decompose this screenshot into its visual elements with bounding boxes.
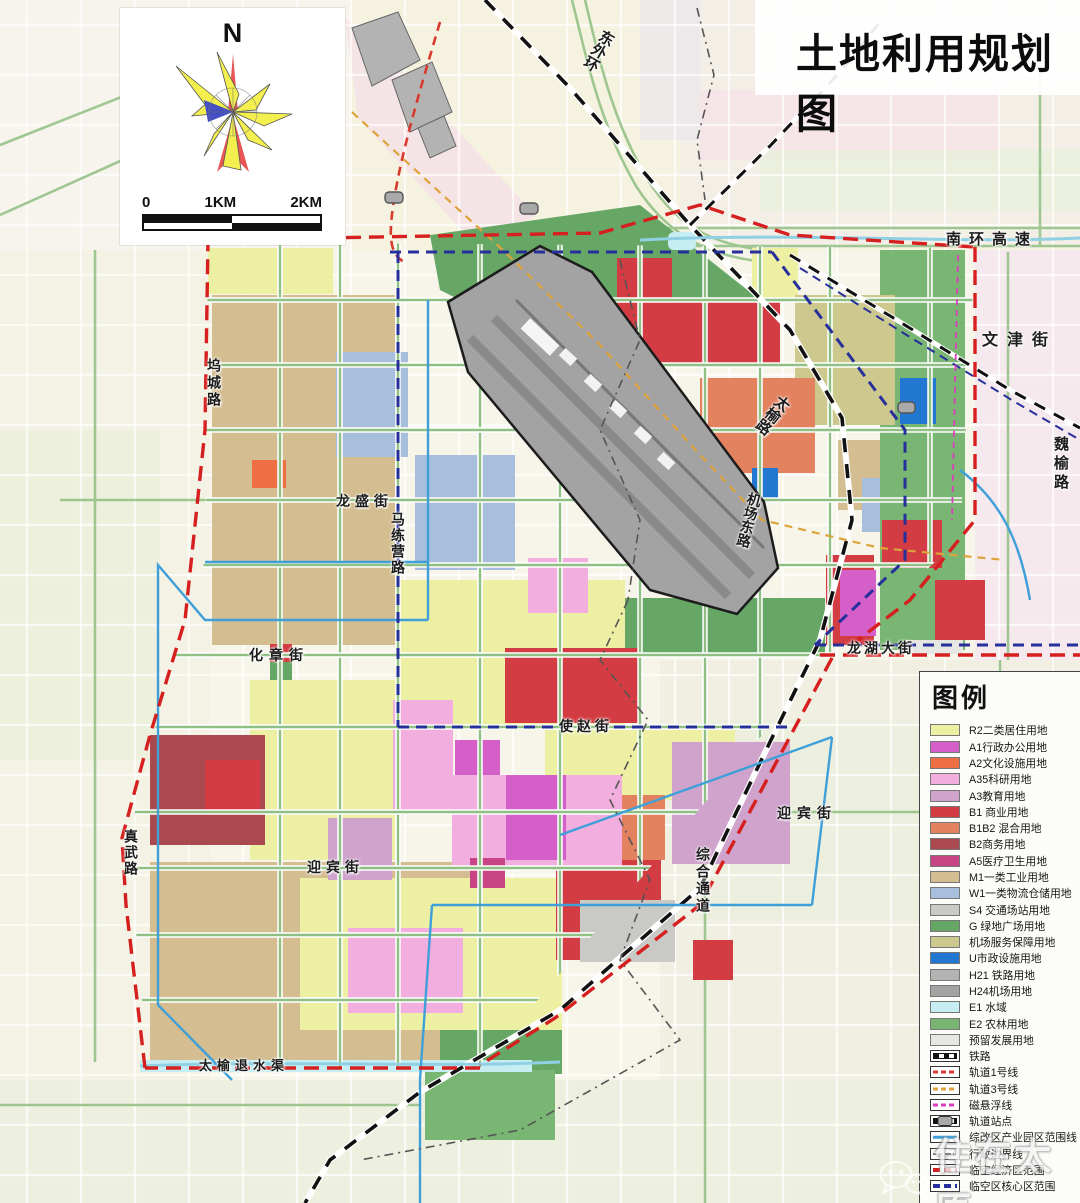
legend-item-label: R2二类居住用地 bbox=[969, 722, 1048, 738]
legend-swatch bbox=[930, 904, 960, 916]
legend-item-label: B2商务用地 bbox=[969, 836, 1025, 852]
legend-item-label: A5医疗卫生用地 bbox=[969, 853, 1047, 869]
legend-line-swatch bbox=[930, 1083, 960, 1095]
legend-item-label: A2文化设施用地 bbox=[969, 755, 1047, 771]
legend-swatch bbox=[930, 838, 960, 850]
legend-line-swatch bbox=[930, 1099, 960, 1111]
legend-swatch bbox=[930, 936, 960, 948]
legend-item-label: W1一类物流仓储用地 bbox=[969, 885, 1072, 901]
legend-item: R2二类居住用地 bbox=[930, 724, 1080, 737]
legend-swatch bbox=[930, 920, 960, 932]
legend-item: A2文化设施用地 bbox=[930, 757, 1080, 770]
legend-line-swatch bbox=[930, 1066, 960, 1078]
map-title: 土地利用规划图 bbox=[796, 20, 1080, 140]
legend-panel: 图例 R2二类居住用地A1行政办公用地A2文化设施用地A35科研用地A3教育用地… bbox=[919, 671, 1080, 1203]
land-use-planning-map: 东外环南环高速文津街魏榆路坞城路龙盛街马练营路太榆路机场东路化章街使赵街龙湖大街… bbox=[0, 0, 1080, 1203]
legend-swatch bbox=[930, 822, 960, 834]
legend-item-label: E2 农林用地 bbox=[969, 1016, 1028, 1032]
scale-labels: 0 1KM 2KM bbox=[142, 194, 322, 211]
legend-item-label: G 绿地广场用地 bbox=[969, 918, 1045, 934]
legend-item-label: B1B2 混合用地 bbox=[969, 820, 1042, 836]
legend-item: H21 铁路用地 bbox=[930, 968, 1080, 981]
legend-item: E1 水域 bbox=[930, 1001, 1080, 1014]
legend-line-swatch bbox=[930, 1180, 960, 1192]
legend-item: W1一类物流仓储用地 bbox=[930, 887, 1080, 900]
legend-item: 机场服务保障用地 bbox=[930, 936, 1080, 949]
legend-item-label: 临空经济区范围 bbox=[969, 1162, 1045, 1178]
legend-item-label: U市政设施用地 bbox=[969, 950, 1042, 966]
legend-item: S4 交通场站用地 bbox=[930, 903, 1080, 916]
legend-item: B1B2 混合用地 bbox=[930, 822, 1080, 835]
legend-item-label: B1 商业用地 bbox=[969, 804, 1028, 820]
legend-item-label: A35科研用地 bbox=[969, 771, 1031, 787]
legend-item-label: M1一类工业用地 bbox=[969, 869, 1049, 885]
compass-rose-icon bbox=[120, 44, 345, 184]
legend-item: 预留发展用地 bbox=[930, 1033, 1080, 1046]
legend-swatch bbox=[930, 1018, 960, 1030]
legend-swatch bbox=[930, 773, 960, 785]
legend-item: 轨道站点 bbox=[930, 1115, 1080, 1128]
legend-swatch bbox=[930, 806, 960, 818]
scale-label-0: 0 bbox=[142, 194, 150, 211]
legend-swatch bbox=[930, 952, 960, 964]
legend-item: A3教育用地 bbox=[930, 789, 1080, 802]
legend-item: 铁路 bbox=[930, 1050, 1080, 1063]
legend-swatch bbox=[930, 871, 960, 883]
legend-item-label: 铁路 bbox=[969, 1048, 991, 1064]
legend-item: 轨道1号线 bbox=[930, 1066, 1080, 1079]
legend-swatch bbox=[930, 741, 960, 753]
legend-title: 图例 bbox=[932, 678, 1080, 715]
legend-swatch bbox=[930, 790, 960, 802]
legend-swatch bbox=[930, 1001, 960, 1013]
legend-item: 临空区核心区范围 bbox=[930, 1180, 1080, 1193]
legend-item-label: A3教育用地 bbox=[969, 788, 1025, 804]
legend-item-label: 机场服务保障用地 bbox=[969, 934, 1055, 950]
legend-line-swatch bbox=[930, 1148, 960, 1160]
legend-line-swatch bbox=[930, 1131, 960, 1143]
scale-bar: 0 1KM 2KM bbox=[142, 194, 322, 231]
legend-item: G 绿地广场用地 bbox=[930, 919, 1080, 932]
legend-swatch bbox=[930, 724, 960, 736]
legend-item: B2商务用地 bbox=[930, 838, 1080, 851]
legend-line-swatch bbox=[930, 1115, 960, 1127]
legend-item: B1 商业用地 bbox=[930, 805, 1080, 818]
legend-item-label: A1行政办公用地 bbox=[969, 739, 1047, 755]
legend-item-label: 预留发展用地 bbox=[969, 1032, 1034, 1048]
legend-swatch bbox=[930, 887, 960, 899]
scale-label-1km: 1KM bbox=[205, 194, 237, 211]
scale-bar-graphic bbox=[142, 214, 322, 231]
legend-item-label: 轨道1号线 bbox=[969, 1064, 1018, 1080]
legend-item: 行政边界线 bbox=[930, 1147, 1080, 1160]
legend-item-label: 磁悬浮线 bbox=[969, 1097, 1012, 1113]
legend-item-label: H24机场用地 bbox=[969, 983, 1032, 999]
legend-items: R2二类居住用地A1行政办公用地A2文化设施用地A35科研用地A3教育用地B1 … bbox=[930, 724, 1080, 1193]
legend-item-label: 综改区产业园区范围线 bbox=[969, 1129, 1077, 1145]
legend-item: U市政设施用地 bbox=[930, 952, 1080, 965]
legend-item: 磁悬浮线 bbox=[930, 1098, 1080, 1111]
legend-item-label: S4 交通场站用地 bbox=[969, 902, 1050, 918]
legend-item: M1一类工业用地 bbox=[930, 871, 1080, 884]
legend-item: E2 农林用地 bbox=[930, 1017, 1080, 1030]
legend-swatch bbox=[930, 969, 960, 981]
legend-line-swatch bbox=[930, 1050, 960, 1062]
legend-item: 轨道3号线 bbox=[930, 1082, 1080, 1095]
legend-swatch bbox=[930, 985, 960, 997]
legend-swatch bbox=[930, 855, 960, 867]
legend-item: A5医疗卫生用地 bbox=[930, 854, 1080, 867]
legend-item-label: E1 水域 bbox=[969, 999, 1007, 1015]
legend-item-label: 轨道3号线 bbox=[969, 1081, 1018, 1097]
legend-item: 临空经济区范围 bbox=[930, 1164, 1080, 1177]
legend-item: A1行政办公用地 bbox=[930, 740, 1080, 753]
legend-swatch bbox=[930, 757, 960, 769]
legend-item: A35科研用地 bbox=[930, 773, 1080, 786]
legend-item-label: 轨道站点 bbox=[969, 1113, 1012, 1129]
legend-item: H24机场用地 bbox=[930, 985, 1080, 998]
scale-label-2km: 2KM bbox=[290, 194, 322, 211]
legend-item: 综改区产业园区范围线 bbox=[930, 1131, 1080, 1144]
legend-item-label: 临空区核心区范围 bbox=[969, 1178, 1055, 1194]
compass-scale-panel: N 0 bbox=[120, 8, 345, 245]
legend-item-label: H21 铁路用地 bbox=[969, 967, 1035, 983]
legend-item-label: 行政边界线 bbox=[969, 1146, 1023, 1162]
legend-swatch bbox=[930, 1034, 960, 1046]
legend-line-swatch bbox=[930, 1164, 960, 1176]
